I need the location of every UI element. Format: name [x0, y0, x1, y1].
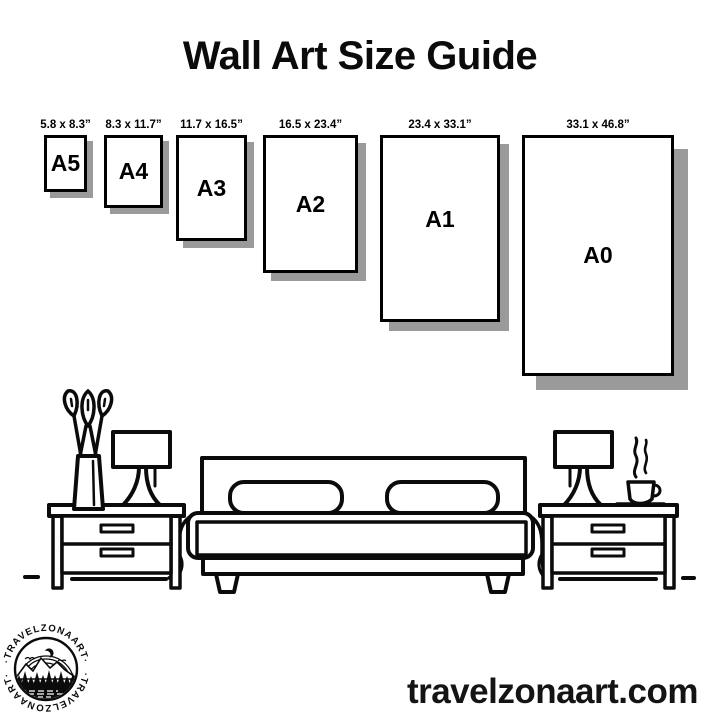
- steam-icon: [645, 440, 647, 473]
- mattress: [188, 513, 533, 558]
- nightstand-right: [540, 505, 677, 588]
- pillow-right: [387, 482, 498, 513]
- lamp-shade: [555, 432, 612, 467]
- bed: [169, 458, 551, 592]
- vase-with-flowers: [64, 391, 111, 509]
- bedroom-illustration: [0, 0, 720, 720]
- moon-cutout: [42, 651, 50, 659]
- bed-leg-right: [487, 574, 509, 592]
- pillow-left: [230, 482, 342, 513]
- bed-leg-left: [216, 574, 238, 592]
- leaf-vein: [104, 399, 105, 406]
- steam-icon: [634, 438, 637, 477]
- flower-stem: [95, 416, 102, 456]
- vase-highlight: [93, 461, 94, 505]
- leaf-vein: [71, 399, 72, 406]
- table-lamp-right: [555, 432, 612, 505]
- flower-stem: [74, 416, 81, 456]
- floor-lines: [25, 577, 694, 579]
- nightstand-left: [49, 505, 184, 588]
- lamp-shade: [113, 432, 170, 467]
- website-url: travelzonaart.com: [407, 672, 698, 712]
- coffee-cup: [617, 438, 664, 504]
- travelzonaart-logo: ·TRAVELZONAART· ·TRAVELZONAART·: [0, 617, 94, 719]
- bed-base: [203, 558, 523, 574]
- table-lamp-left: [113, 432, 170, 505]
- vase: [74, 456, 103, 509]
- cup-body: [628, 482, 654, 504]
- wall-art-size-guide-poster: Wall Art Size Guide 5.8 x 8.3” A5 8.3 x …: [0, 0, 720, 720]
